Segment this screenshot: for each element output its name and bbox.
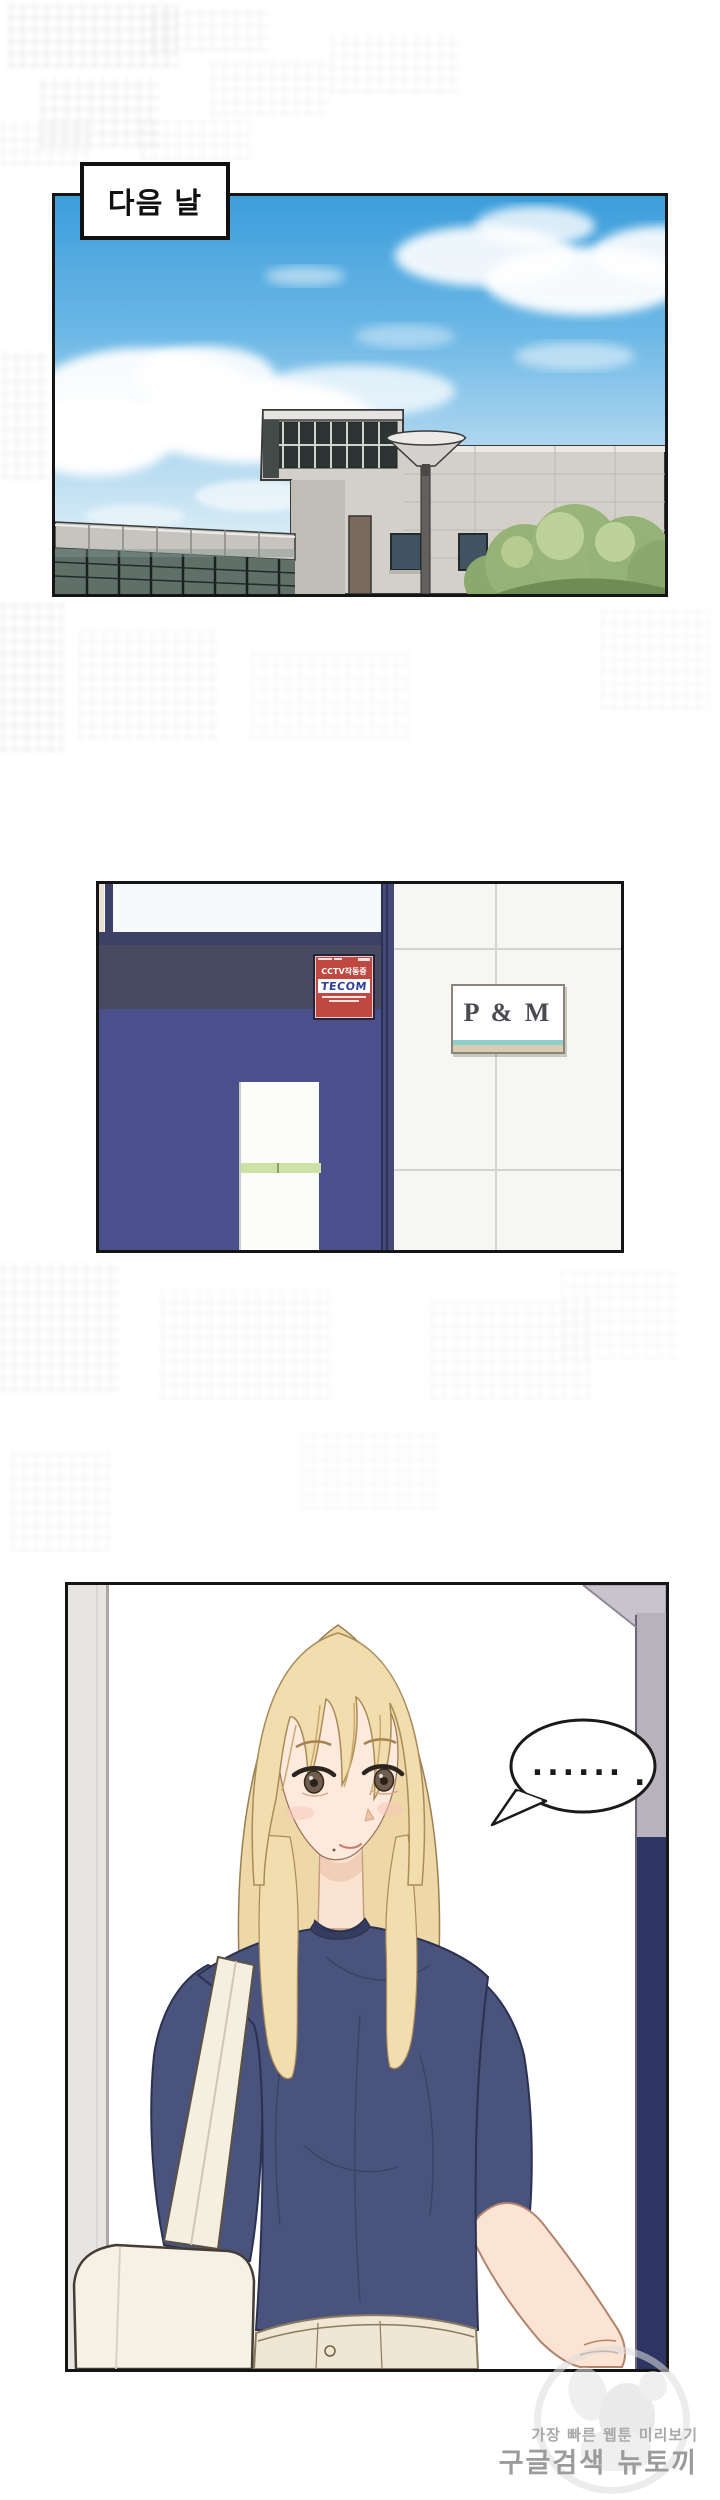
door-paper-window [239, 1082, 319, 1250]
faint-watermark-pattern [210, 60, 330, 116]
faint-watermark-pattern [78, 630, 218, 740]
open-door [583, 1585, 666, 2369]
watermark-brand: 구글검색 뉴토끼 [400, 2441, 698, 2480]
building-exterior-scene [55, 196, 665, 594]
blush-left [286, 1806, 314, 1820]
faint-watermark-pattern [40, 78, 160, 148]
faint-watermark-pattern [0, 602, 64, 752]
building-entrance [349, 516, 371, 594]
panel-building-exterior [52, 193, 668, 597]
tile-grout-line [394, 948, 621, 950]
faint-watermark-pattern [560, 1270, 680, 1360]
watermark-figure [639, 2371, 667, 2401]
pm-sign: P & M [451, 984, 565, 1054]
transom-window [99, 884, 381, 936]
bubble-dots: ...... [532, 1748, 624, 1783]
faint-watermark-pattern [150, 8, 270, 52]
speech-bubble: ...... . [492, 1720, 655, 1825]
paper-green-band [241, 1163, 321, 1173]
faint-watermark-pattern [10, 1452, 110, 1552]
skirt-button [325, 2346, 335, 2356]
sticker-brand-label: TECOM [320, 980, 367, 993]
woman-scene: ...... . [68, 1585, 666, 2369]
sticker-cctv-label: CCTV작동중 [318, 968, 370, 976]
woman-mole [333, 1849, 336, 1852]
blush-right [377, 1802, 403, 1816]
transom-rail [99, 932, 381, 945]
pm-sign-label: P & M [453, 986, 563, 1040]
faint-watermark-pattern [8, 4, 178, 68]
panel-entrance-door: CCTV작동중 TECOM P & M [96, 881, 624, 1253]
bubble-extra-dot: . [634, 1758, 645, 1793]
faint-watermark-pattern [430, 1300, 590, 1400]
scene-caption-label: 다음 날 [108, 180, 202, 222]
tile-grout-line [394, 1169, 621, 1171]
faint-watermark-pattern [0, 120, 90, 166]
sticker-fineprint [318, 958, 370, 961]
door-frame-edge-line [386, 884, 388, 1250]
panel-woman-at-door: ...... . [65, 1582, 669, 2372]
transom-frame-bar [105, 884, 113, 936]
woman-right-arm [470, 2203, 625, 2367]
faint-watermark-pattern [330, 34, 460, 94]
cctv-sticker: CCTV작동중 TECOM [313, 954, 375, 1020]
faint-watermark-pattern [2, 350, 48, 480]
tile-grout-line [495, 884, 497, 1250]
webtoon-page: 다음 날 [0, 0, 720, 2500]
sticker-fineprint [318, 996, 370, 1002]
sticker-brand-band: TECOM [318, 979, 370, 993]
faint-watermark-pattern [250, 650, 410, 740]
pm-sign-bezel [453, 1045, 563, 1052]
faint-watermark-pattern [140, 120, 250, 160]
scene-caption-box: 다음 날 [80, 162, 230, 240]
paper-band-tick [277, 1163, 279, 1173]
penthouse-windows [263, 410, 403, 478]
glass-corridor [55, 522, 295, 594]
tote-bag [74, 2245, 254, 2369]
faint-watermark-pattern [600, 610, 710, 710]
faint-watermark-pattern [0, 1262, 120, 1392]
wall-sliver [99, 884, 104, 936]
faint-watermark-pattern [160, 1290, 330, 1400]
faint-watermark-pattern [300, 1430, 440, 1510]
skirt [254, 2315, 478, 2369]
tile-wall [394, 884, 621, 1250]
